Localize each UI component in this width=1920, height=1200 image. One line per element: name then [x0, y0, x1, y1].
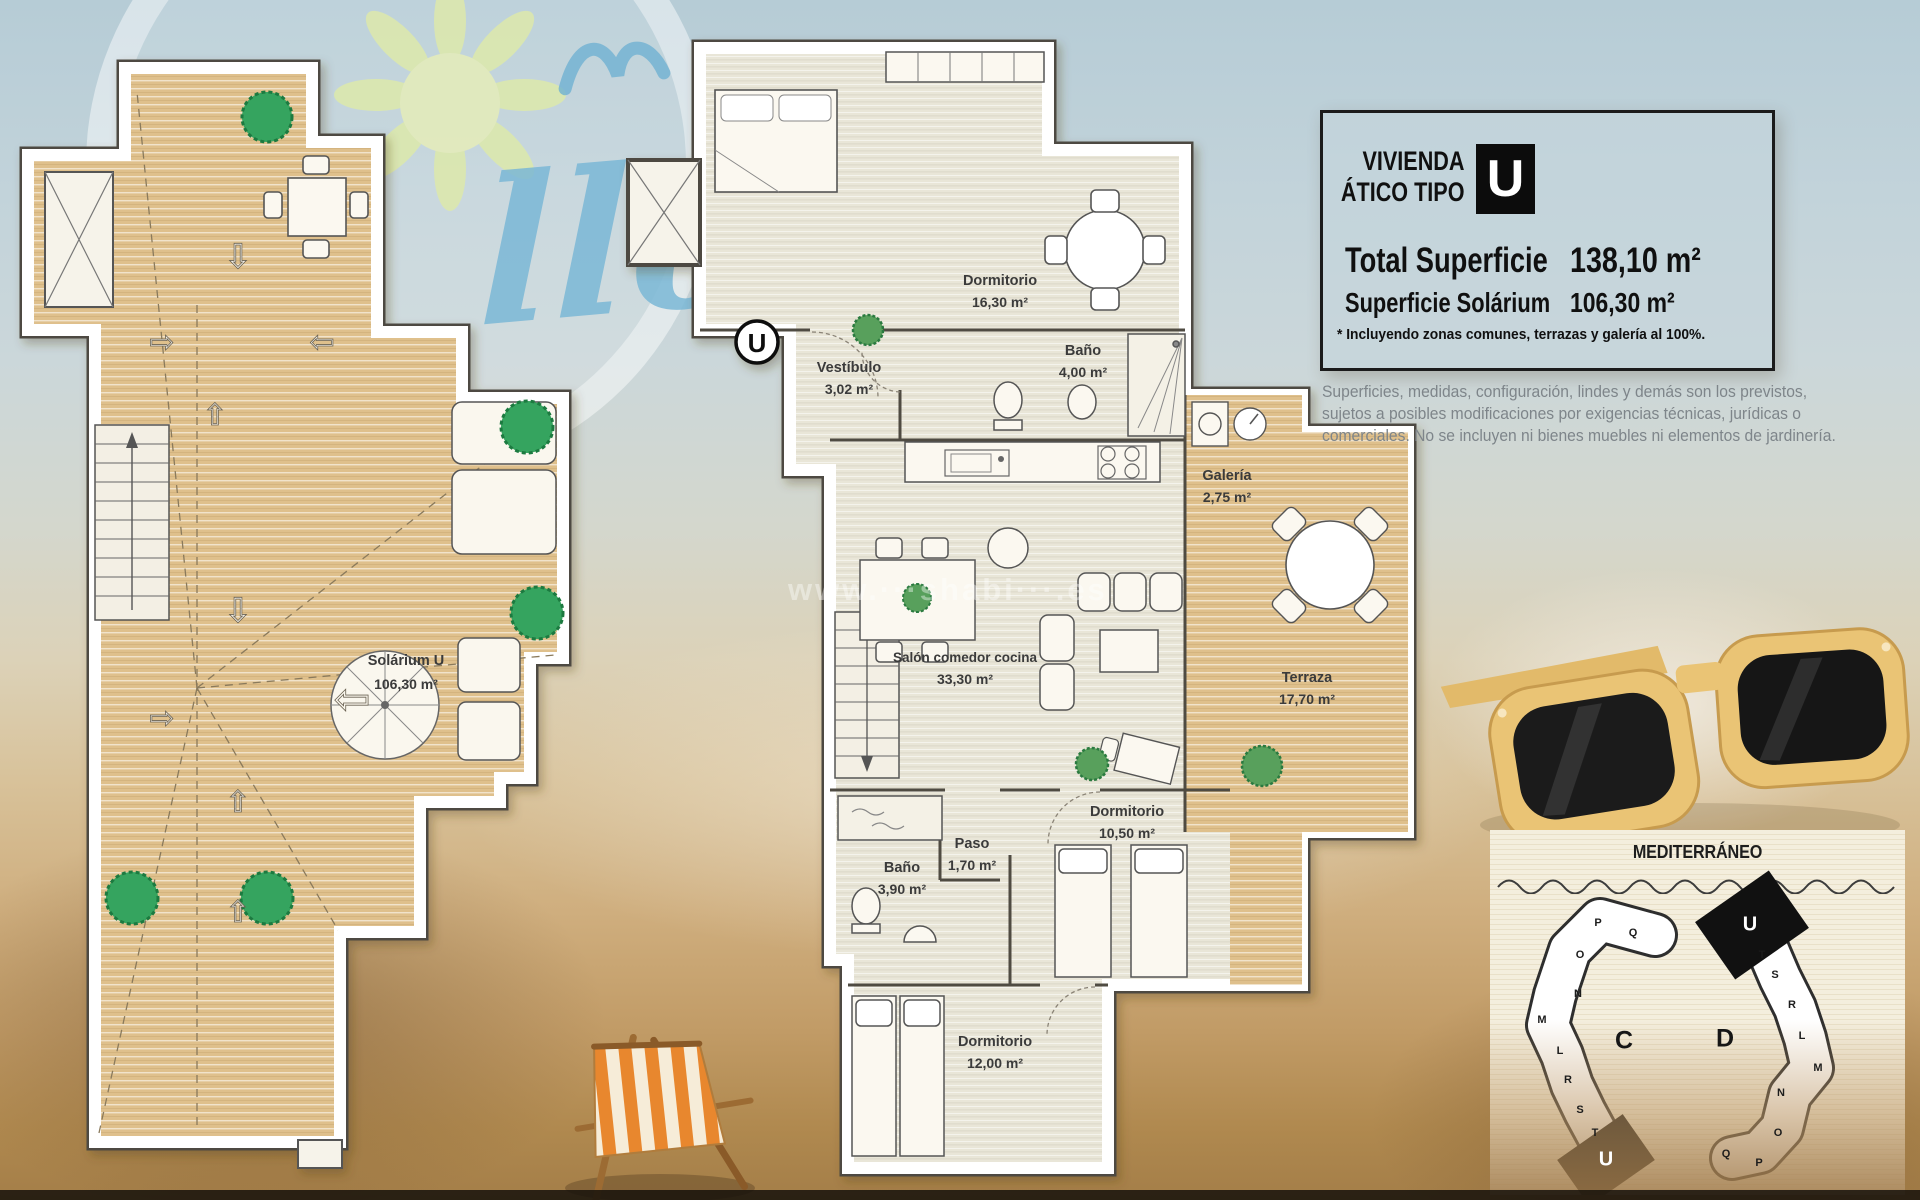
room-area-vestibulo: 3,02 m² — [825, 381, 874, 397]
site-plan: MEDITERRÁNEO P Q O N M L R S T U C — [1490, 830, 1905, 1195]
svg-text:⇩: ⇩ — [224, 591, 253, 631]
unit-letter: Q — [1722, 1148, 1731, 1160]
room-label-dormitorio3: Dormitorio — [958, 1034, 1032, 1050]
unit-letter-highlighted: U — [1599, 1149, 1613, 1172]
unit-letter: S — [1771, 969, 1778, 981]
unit-letter: R — [1788, 999, 1796, 1011]
unit-letter: N — [1574, 988, 1582, 1000]
dwelling-type-title: VIVIENDA ÁTICO TIPO — [1340, 146, 1464, 208]
room-area-salon: 33,30 m² — [937, 671, 993, 687]
svg-text:⇦: ⇦ — [309, 325, 334, 360]
solarium-access-hatch — [298, 1140, 342, 1168]
type-letter-box: U — [1476, 144, 1535, 214]
svg-text:⇩: ⇩ — [224, 237, 253, 277]
elevator-shaft — [628, 160, 700, 265]
info-panel: VIVIENDA ÁTICO TIPO U Total Superficie 1… — [1320, 110, 1775, 371]
room-label-bano2: Baño — [884, 860, 920, 876]
room-label-paso: Paso — [955, 836, 990, 852]
stairs — [95, 425, 169, 620]
title-line1: VIVIENDA — [1340, 146, 1464, 177]
legal-disclaimer: Superficies, medidas, configuración, lin… — [1322, 381, 1874, 447]
unit-letter: T — [1592, 1127, 1599, 1139]
svg-text:⇦: ⇦ — [334, 674, 371, 725]
disclaimer-line: Superficies, medidas, configuración, lin… — [1322, 381, 1874, 403]
unit-badge-letter: U — [748, 328, 767, 358]
room-label-vestibulo: Vestíbulo — [817, 360, 882, 376]
sand-fade-overlay — [1490, 830, 1905, 1195]
solarium-surface-label: Superficie Solárium — [1345, 287, 1550, 319]
unit-letter: M — [1537, 1014, 1546, 1026]
unit-letter: N — [1777, 1087, 1785, 1099]
room-label-salon: Salón comedor cocina — [893, 650, 1038, 665]
svg-text:⇧: ⇧ — [225, 785, 250, 820]
svg-text:⇧: ⇧ — [202, 398, 227, 433]
unit-letter: L — [1557, 1045, 1564, 1057]
room-label-solarium: Solárium U — [368, 653, 445, 669]
elevator-shaft — [45, 172, 113, 307]
potted-plant — [853, 315, 883, 345]
svg-text:⇨: ⇨ — [149, 325, 174, 360]
room-area-bano2: 3,90 m² — [878, 881, 927, 897]
unit-letter: R — [1564, 1074, 1572, 1086]
svg-text:⇧: ⇧ — [225, 895, 250, 930]
unit-letter: T — [1759, 949, 1766, 961]
unit-letter: P — [1594, 917, 1601, 929]
room-area-terraza: 17,70 m² — [1279, 691, 1335, 707]
website-watermark: www.···shabi···.es — [788, 572, 1108, 608]
solarium-surface-value: 106,30 m² — [1570, 287, 1675, 319]
wardrobe — [886, 52, 1044, 82]
solarium-floor-plan: ⇩ ⇨ ⇦ ⇧ ⇩ ⇨ ⇦ ⇧ ⇧ Solárium U 106,30 m² — [28, 68, 563, 1168]
unit-letter: O — [1774, 1127, 1783, 1139]
svg-text:⇨: ⇨ — [149, 701, 174, 736]
room-area-paso: 1,70 m² — [948, 857, 997, 873]
unit-letter-highlighted: U — [1743, 914, 1757, 937]
unit-letter: O — [1576, 949, 1585, 961]
block-label-d: D — [1716, 1025, 1734, 1054]
unit-letter: L — [1799, 1030, 1806, 1042]
total-surface-label: Total Superficie — [1345, 241, 1548, 281]
disclaimer-line: comerciales. No se incluyen ni bienes mu… — [1322, 425, 1874, 447]
brochure-page: llo — [0, 0, 1920, 1200]
block-label-c: C — [1615, 1027, 1633, 1056]
total-surface-value: 138,10 m² — [1570, 241, 1701, 281]
apartment-floor-plan: U Dormitorio 16,30 m² Baño 4,00 m² Vestí… — [628, 48, 1408, 1168]
room-area-dormitorio3: 12,00 m² — [967, 1055, 1023, 1071]
room-label-terraza: Terraza — [1282, 670, 1333, 686]
room-area-dormitorio2: 10,50 m² — [1099, 825, 1155, 841]
title-line2: ÁTICO TIPO — [1340, 177, 1464, 208]
unit-letter: P — [1755, 1157, 1762, 1169]
disclaimer-line: sujetos a posibles modificaciones por ex… — [1322, 403, 1874, 425]
unit-badge: U — [736, 321, 778, 363]
unit-letter: M — [1813, 1062, 1822, 1074]
beach-deck-chair — [565, 1026, 759, 1200]
double-bed — [715, 90, 837, 192]
surface-footnote: * Incluyendo zonas comunes, terrazas y g… — [1337, 326, 1705, 343]
room-label-dormitorio1: Dormitorio — [963, 273, 1037, 289]
room-label-galeria: Galería — [1202, 468, 1252, 484]
room-area-galeria: 2,75 m² — [1203, 489, 1252, 505]
room-area-solarium: 106,30 m² — [374, 676, 438, 692]
bottom-edge-bar — [0, 1190, 1920, 1200]
unit-letter: Q — [1629, 927, 1638, 939]
unit-letter: S — [1576, 1104, 1583, 1116]
kitchen-counter — [905, 442, 1160, 482]
room-label-bano1: Baño — [1065, 343, 1101, 359]
sunglasses-photo — [1420, 575, 1920, 855]
room-area-dormitorio1: 16,30 m² — [972, 294, 1028, 310]
room-label-dormitorio2: Dormitorio — [1090, 804, 1164, 820]
room-area-bano1: 4,00 m² — [1059, 364, 1108, 380]
